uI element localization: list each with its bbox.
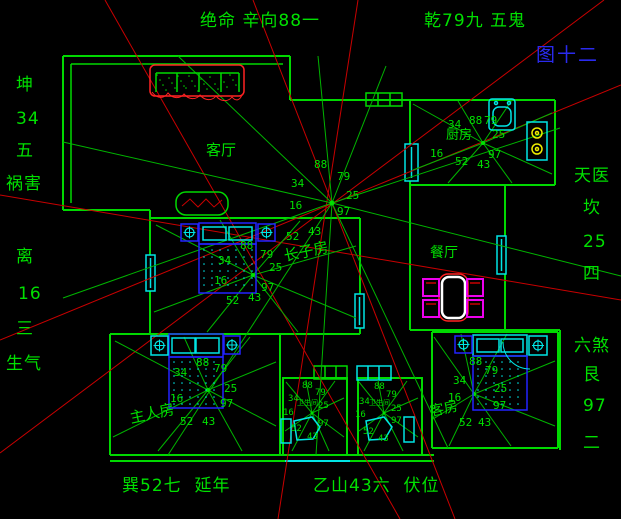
star-number: 34 [218,255,231,266]
star-number: 52 [286,231,299,242]
star-number: 25 [346,190,359,201]
dining-chairs [423,279,483,317]
star-number: 25 [224,383,237,394]
star-number: 43 [477,159,490,170]
star-number: 97 [493,400,506,411]
label-left-rank-three: 三 [16,320,34,340]
label-top-direction: 绝命 辛向88一 [200,12,320,32]
star-number: 79 [386,391,397,400]
star-number: 25 [492,129,505,140]
room-label-living: 客厅 [206,142,236,159]
figure-number: 图十二 [536,45,599,67]
label-left-trigram-kun: 坤 [16,76,34,96]
label-left-rank-five: 五 [16,142,34,162]
star-number: 16 [289,200,302,211]
star-number: 79 [484,115,497,126]
label-right-number-25: 25 [583,233,607,253]
label-bottom-right-direction: 乙山43六 伏位 [313,477,439,497]
star-number: 25 [494,383,507,394]
star-number: 16 [355,411,366,420]
cad-canvas: 绝命 辛向88一 乾79九 五鬼 图十二 坤 34 五 祸害 离 16 三 生气… [0,0,621,519]
sofa [150,65,244,101]
label-right-rank-four: 四 [583,265,601,285]
star-number: 88 [469,356,482,367]
room-label-bath-right: 卫生间 [369,399,390,407]
star-number: 97 [318,420,329,429]
star-number: 43 [478,417,491,428]
star-number: 79 [337,171,350,182]
star-number: 97 [391,417,402,426]
star-number: 25 [391,405,402,414]
star-number: 88 [240,240,253,251]
star-number: 16 [448,392,461,403]
star-number: 97 [337,206,350,217]
star-number: 88 [374,383,385,392]
label-left-trigram-li: 离 [16,248,34,268]
star-number: 16 [283,409,294,418]
star-number: 34 [291,178,304,189]
star-number: 97 [261,282,274,293]
star-number: 52 [455,156,468,167]
label-left-star-shengqi: 生气 [6,355,42,375]
label-right-star-liusha: 六煞 [574,337,610,357]
label-top-right-direction: 乾79九 五鬼 [424,12,526,32]
star-number: 52 [226,295,239,306]
label-left-star-huohai: 祸害 [6,175,42,195]
room-label-dining: 餐厅 [430,245,458,261]
star-number: 88 [314,159,327,170]
label-bottom-left-direction: 巽52七 延年 [122,477,230,497]
star-number: 16 [214,275,227,286]
label-right-rank-two: 二 [583,434,601,454]
star-number: 34 [453,375,466,386]
star-number: 88 [469,115,482,126]
star-number: 52 [180,416,193,427]
label-right-number-97: 97 [583,397,607,417]
star-number: 88 [196,357,209,368]
star-number: 34 [288,395,299,404]
label-left-number-34: 34 [16,110,40,130]
dining-table [439,274,468,321]
label-right-trigram-gen: 艮 [583,366,601,386]
star-number: 43 [378,435,389,444]
label-right-star-tianyi: 天医 [574,167,610,187]
star-number: 79 [485,365,498,376]
star-number: 88 [302,382,313,391]
star-number: 25 [318,402,329,411]
star-number: 79 [315,389,326,398]
star-number: 79 [260,249,273,260]
star-number: 52 [363,428,374,437]
star-number: 34 [448,119,461,130]
star-number: 34 [359,398,370,407]
stove [527,122,547,160]
star-number: 16 [170,393,183,404]
star-number: 16 [430,148,443,159]
star-number: 43 [248,292,261,303]
room-label-kitchen: 厨房 [446,129,472,144]
star-number: 97 [220,398,233,409]
label-right-trigram-kan: 坎 [583,199,601,219]
star-number: 79 [214,363,227,374]
star-number: 34 [174,367,187,378]
sofa-speckles [156,74,240,92]
star-number: 43 [307,433,318,442]
label-left-number-16: 16 [18,285,42,305]
room-label-bath-left: 卫生间 [297,399,318,407]
star-number: 43 [202,416,215,427]
star-number: 43 [308,226,321,237]
star-number: 25 [269,262,282,273]
star-number: 52 [459,417,472,428]
star-number: 52 [291,425,302,434]
